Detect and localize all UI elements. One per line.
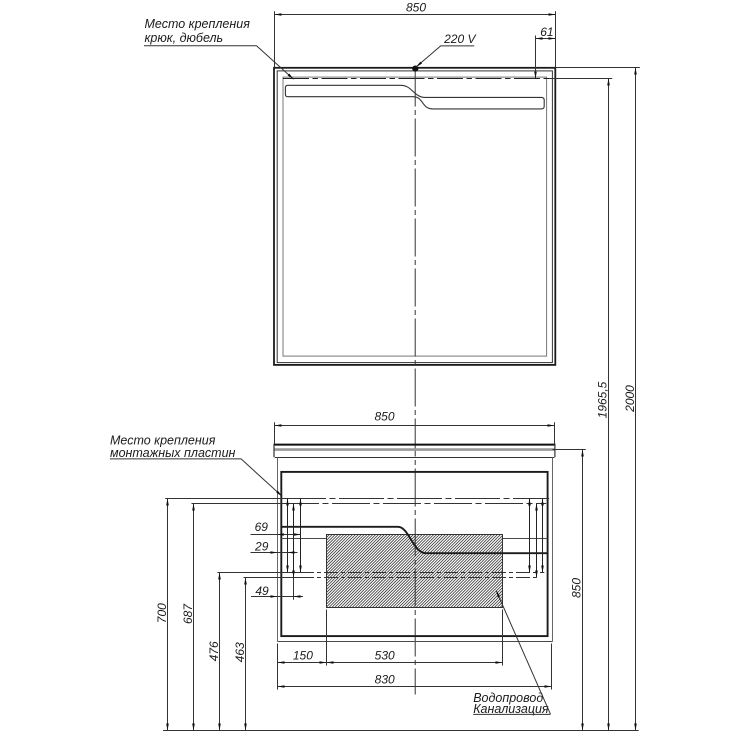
- svg-text:29: 29: [254, 539, 269, 553]
- svg-text:монтажных пластин: монтажных пластин: [110, 446, 236, 460]
- svg-text:69: 69: [255, 520, 269, 534]
- svg-text:850: 850: [406, 0, 426, 14]
- svg-text:1965,5: 1965,5: [596, 381, 610, 418]
- svg-text:49: 49: [255, 584, 269, 598]
- svg-text:830: 830: [375, 672, 395, 686]
- svg-text:крюк, дюбель: крюк, дюбель: [145, 31, 224, 45]
- svg-text:530: 530: [375, 649, 395, 663]
- svg-text:850: 850: [374, 410, 394, 424]
- svg-text:700: 700: [155, 603, 169, 623]
- svg-text:850: 850: [569, 578, 583, 598]
- svg-text:150: 150: [293, 649, 313, 663]
- svg-text:463: 463: [233, 642, 247, 662]
- svg-text:476: 476: [207, 641, 221, 661]
- svg-text:61: 61: [540, 25, 553, 39]
- svg-text:2000: 2000: [623, 385, 637, 413]
- svg-text:Место крепления: Место крепления: [145, 17, 251, 31]
- svg-text:687: 687: [181, 603, 195, 624]
- svg-text:220 V: 220 V: [443, 32, 476, 46]
